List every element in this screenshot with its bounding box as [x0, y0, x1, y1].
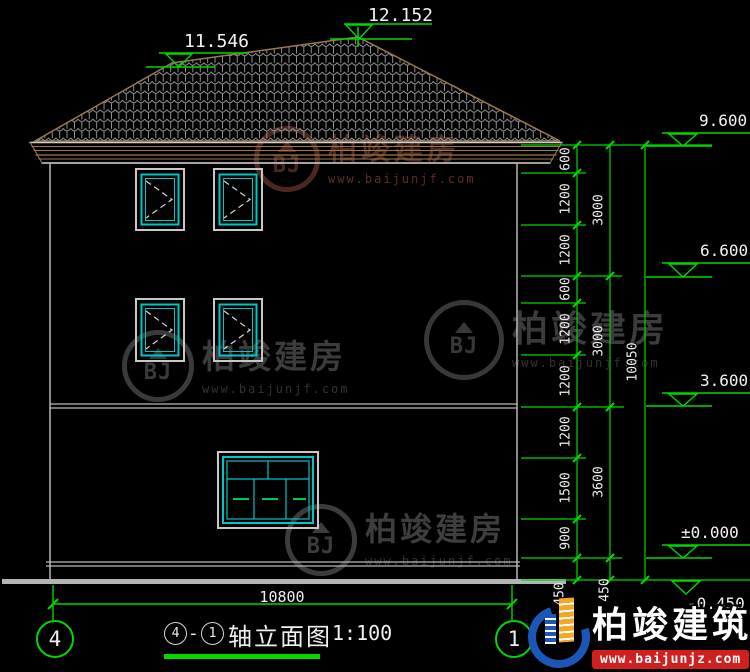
baijun-logo-icon — [528, 596, 590, 666]
dim-value: 3000 — [592, 325, 607, 356]
grid-bubble-4: 4 — [36, 620, 74, 658]
title-axis-end-circle: 1 — [201, 622, 224, 645]
window-floor2-right — [214, 299, 262, 361]
level-zero: ±0.000 — [681, 523, 739, 542]
drawing-scale: 1:100 — [332, 621, 392, 645]
title-underline — [164, 654, 320, 659]
grid-bubble-4-label: 4 — [49, 627, 62, 651]
dim-value: 1200 — [559, 234, 574, 265]
wall-outline — [50, 163, 517, 581]
casement-swing-dashes — [224, 181, 250, 218]
building-icon — [559, 597, 574, 642]
roof-tile-field — [35, 37, 560, 141]
casement-swing-dashes — [146, 181, 172, 218]
dim-value: 1200 — [559, 365, 574, 396]
roof — [35, 27, 560, 141]
cad-elevation-drawing: BJ 柏竣建房 www.baijunjf.com BJ 柏竣建房 www.bai… — [0, 0, 750, 672]
footer-brand-logo: 柏竣建筑 www.baijunjz.com — [528, 596, 750, 669]
footer-brand-url-text: www.baijunjz.com — [600, 652, 741, 667]
dim-value: 600 — [559, 277, 574, 300]
window-floor3-left — [136, 169, 184, 230]
title-axis-start-circle: 4 — [164, 622, 187, 645]
casement-swing-dashes — [146, 311, 172, 349]
level-peak: 12.152 — [368, 5, 433, 26]
ground-line — [2, 579, 566, 584]
dim-value: 3600 — [592, 466, 607, 497]
footer-brand-url: www.baijunjz.com — [592, 650, 749, 669]
dim-value: 1200 — [559, 416, 574, 447]
title-dash: - — [188, 623, 199, 644]
level-eave: 9.600 — [699, 111, 747, 130]
title-axis-end: 1 — [209, 626, 217, 641]
dim-value: 1200 — [559, 183, 574, 214]
dim-value: 900 — [559, 526, 574, 549]
dim-value: 600 — [559, 147, 574, 170]
building-shell — [2, 163, 566, 584]
level-hip: 11.546 — [184, 31, 249, 52]
eave-cornice — [30, 142, 562, 163]
window-floor2-left — [136, 299, 184, 361]
window-floor3-right — [214, 169, 262, 230]
level-floor2: 3.600 — [700, 371, 748, 390]
elevation-linework — [0, 0, 750, 672]
dim-value: 1500 — [559, 472, 574, 503]
dim-total-right: 10050 — [626, 342, 641, 381]
building-icon — [545, 614, 556, 644]
dim-value: 1200 — [559, 313, 574, 344]
dim-value: 3000 — [592, 194, 607, 225]
title-axis-start: 4 — [172, 626, 180, 641]
grid-bubble-1-label: 1 — [508, 627, 521, 651]
window-floor1 — [218, 452, 318, 528]
drawing-title: 轴立面图 — [228, 617, 332, 652]
dim-total-bottom: 10800 — [259, 588, 304, 606]
level-floor3: 6.600 — [700, 241, 748, 260]
footer-brand-name: 柏竣建筑 — [592, 596, 750, 648]
casement-swing-dashes — [224, 311, 250, 349]
